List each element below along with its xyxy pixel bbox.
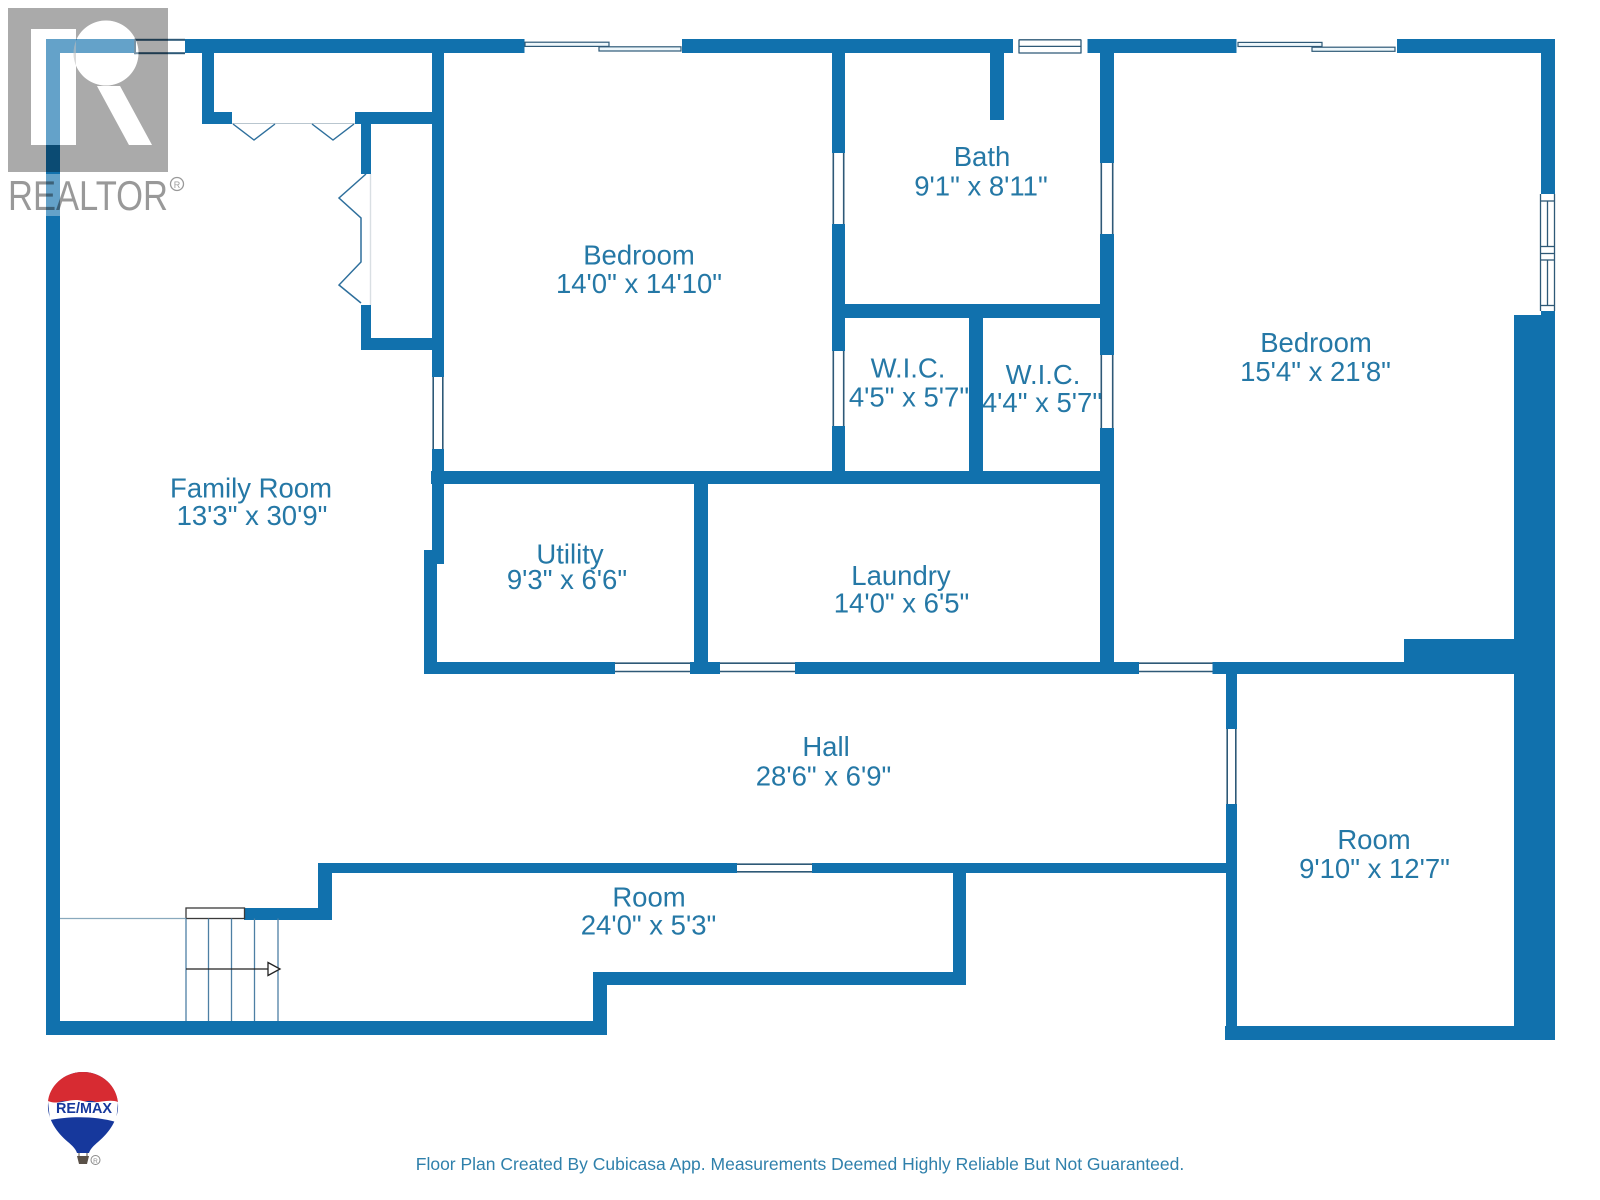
- svg-text:R: R: [93, 1158, 98, 1165]
- svg-text:13'3" x 30'9": 13'3" x 30'9": [177, 500, 328, 531]
- svg-text:Family Room: Family Room: [170, 473, 332, 504]
- svg-text:Hall: Hall: [802, 731, 849, 762]
- svg-text:Laundry: Laundry: [851, 560, 951, 591]
- svg-text:9'3" x 6'6": 9'3" x 6'6": [507, 564, 627, 595]
- svg-text:W.I.C.: W.I.C.: [871, 353, 946, 384]
- svg-text:Bedroom: Bedroom: [1260, 327, 1372, 358]
- svg-text:4'5" x 5'7": 4'5" x 5'7": [849, 382, 969, 413]
- svg-text:Room: Room: [612, 882, 685, 913]
- svg-text:R: R: [174, 180, 181, 190]
- svg-text:W.I.C.: W.I.C.: [1006, 359, 1081, 390]
- svg-text:4'4" x 5'7": 4'4" x 5'7": [982, 387, 1102, 418]
- svg-text:REALTOR: REALTOR: [8, 172, 168, 219]
- svg-text:14'0" x 6'5": 14'0" x 6'5": [834, 588, 970, 619]
- svg-text:24'0" x 5'3": 24'0" x 5'3": [581, 910, 717, 941]
- svg-text:15'4" x 21'8": 15'4" x 21'8": [1240, 356, 1391, 387]
- svg-text:14'0" x 14'10": 14'0" x 14'10": [556, 268, 722, 299]
- svg-text:28'6" x 6'9": 28'6" x 6'9": [756, 761, 892, 792]
- svg-text:Bath: Bath: [954, 141, 1011, 172]
- svg-text:9'1" x 8'11": 9'1" x 8'11": [914, 171, 1048, 202]
- svg-text:Room: Room: [1337, 824, 1410, 855]
- svg-text:Bedroom: Bedroom: [583, 240, 695, 271]
- svg-text:9'10" x 12'7": 9'10" x 12'7": [1299, 853, 1450, 884]
- svg-text:Floor Plan Created By Cubicasa: Floor Plan Created By Cubicasa App. Meas…: [416, 1154, 1184, 1174]
- svg-text:RE/MAX: RE/MAX: [56, 1101, 112, 1117]
